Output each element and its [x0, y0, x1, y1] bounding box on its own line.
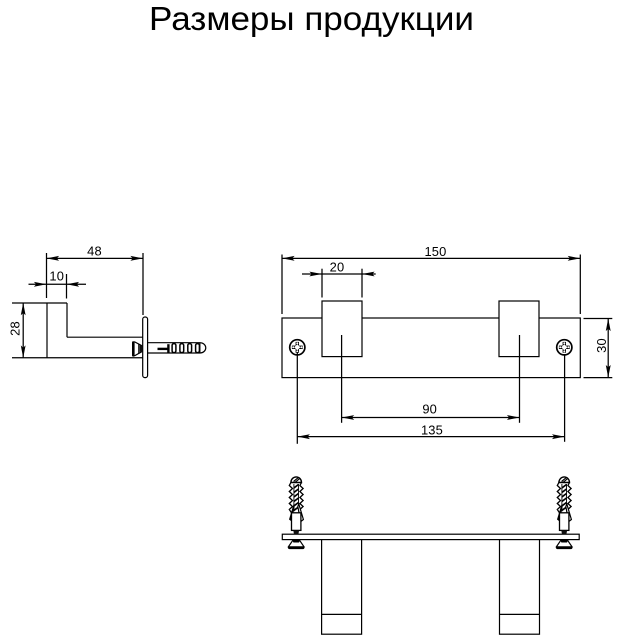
svg-text:Размеры продукции: Размеры продукции: [149, 0, 474, 37]
svg-text:30: 30: [594, 338, 609, 353]
svg-text:135: 135: [421, 422, 443, 437]
svg-text:150: 150: [424, 244, 446, 259]
svg-text:48: 48: [87, 243, 102, 258]
svg-text:28: 28: [8, 321, 23, 336]
svg-text:10: 10: [49, 269, 64, 284]
svg-text:90: 90: [422, 402, 437, 417]
svg-text:20: 20: [330, 259, 345, 274]
